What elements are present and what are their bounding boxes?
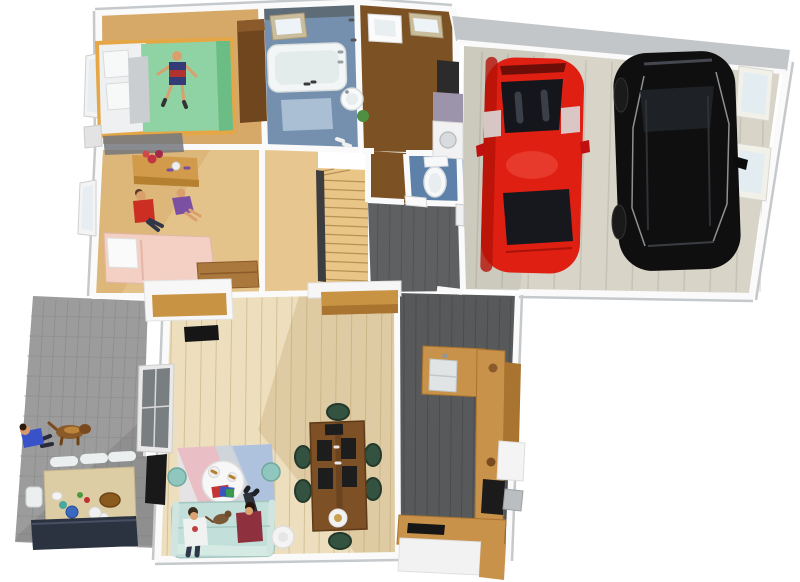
red-car-rear-window — [503, 189, 573, 245]
dining-plate-food — [334, 514, 342, 522]
laundry-basin-bowl — [374, 19, 396, 37]
floor-plan-3d-view — [0, 0, 800, 582]
kids-bed-pillow — [107, 238, 138, 268]
bathroom-sink-basin — [346, 93, 358, 105]
dining-placemat-1 — [317, 440, 332, 461]
sofa-person-2-torso — [236, 511, 263, 543]
red-car-mirror-right — [580, 140, 590, 154]
black-car-windshield — [640, 86, 714, 132]
coffee-table — [202, 461, 244, 503]
landing-floor — [262, 148, 318, 296]
kitchen-tall-cabinet — [503, 362, 521, 443]
fireplace-shelf — [152, 293, 227, 317]
child-on-bed-head — [172, 51, 182, 61]
kitchen-cabinet-front-wood — [479, 542, 506, 580]
sofa-person-1-print — [192, 526, 198, 532]
washing-machine-door — [440, 132, 456, 148]
outdoor-food-green — [77, 492, 83, 498]
living-dark-panel — [145, 454, 167, 505]
dining-chair-right-2 — [365, 478, 381, 500]
coffee-table-book-green — [226, 489, 235, 498]
cat-head — [225, 511, 232, 518]
outdoor-food-jug — [52, 492, 62, 500]
bed-green-blanket-edge — [216, 41, 233, 131]
dining-chair-top — [327, 404, 349, 420]
bathroom-plant — [357, 110, 369, 122]
terrace-man-hair — [20, 424, 27, 431]
dining-placemat-5 — [325, 424, 343, 436]
red-car-stripe-left — [484, 110, 501, 138]
outdoor-food-roast — [100, 493, 120, 507]
outdoor-food-plate-1 — [89, 507, 101, 519]
kitchen-black-oven — [481, 479, 505, 515]
bath-mat — [281, 98, 333, 131]
black-car-wheel-2 — [612, 205, 626, 239]
red-car-stripe-right — [561, 106, 580, 134]
fireplace-insert — [184, 325, 219, 342]
bathtub-inner — [274, 50, 339, 85]
kitchen-cabinet-front — [398, 538, 481, 575]
black-car-wheel-1 — [614, 78, 628, 112]
sofa-back-cushions — [178, 549, 268, 551]
red-car-windshield — [501, 79, 563, 133]
nightstand — [84, 125, 102, 148]
bed-gray-throw — [128, 56, 150, 124]
kitchen-wood-board — [489, 364, 498, 373]
kid-purple-head — [177, 189, 186, 198]
washing-machine-top — [433, 92, 463, 123]
dining-placemat-3 — [318, 468, 333, 489]
garage-window-2-glass — [736, 150, 765, 194]
dining-chair-left-1 — [295, 446, 311, 468]
kid-red-head — [136, 191, 146, 201]
toilet-seat — [429, 173, 442, 193]
side-stool-left — [168, 468, 186, 486]
hall-door — [405, 196, 427, 207]
hall-floor — [368, 202, 461, 292]
garage-door-leaf — [456, 204, 464, 226]
sofa-person-1-torso — [183, 517, 208, 547]
bathroom-skylight-glass — [275, 18, 302, 35]
dining-chair-left-2 — [295, 480, 311, 502]
kids-room-window-glass — [81, 185, 93, 231]
dog-head — [79, 424, 91, 434]
dresser-flowers-3 — [143, 151, 150, 158]
red-car-roof-shine — [506, 151, 558, 179]
dining-chair-bottom — [329, 533, 351, 549]
kitchen-cooktop — [407, 523, 445, 535]
outdoor-food-cup-teal — [59, 501, 67, 509]
sofa-person-1-head — [190, 512, 198, 520]
kitchen-faucet — [443, 354, 448, 359]
kitchen-fridge — [497, 441, 525, 481]
dining-chair-right-1 — [365, 444, 381, 466]
outdoor-chairs-top — [55, 456, 131, 462]
garage-window-1-glass — [741, 72, 768, 115]
black-car-body — [612, 50, 742, 272]
kitchen-steel-box — [503, 489, 523, 511]
wardrobe-top — [237, 19, 265, 32]
sofa-person-2-head — [245, 507, 253, 515]
dog-highlight — [64, 427, 80, 434]
dresser-vase — [172, 162, 180, 170]
dining-placemat-4 — [342, 466, 357, 487]
outdoor-food-bowl-blue — [66, 506, 78, 518]
floor-lamp-inner — [278, 532, 288, 542]
outdoor-chair-left — [26, 487, 42, 507]
dining-placemat-2 — [341, 438, 356, 459]
toilet-tank — [424, 156, 448, 167]
upper-corridor-floor — [366, 151, 409, 203]
floor-plan-canvas — [0, 0, 800, 582]
dresser-flowers-2 — [155, 150, 163, 158]
side-stool-right — [262, 463, 280, 481]
wardrobe — [237, 19, 267, 123]
kitchen-bowl — [487, 458, 496, 467]
laundry-skylight-glass — [413, 18, 439, 33]
bed-pillow-1 — [103, 50, 130, 78]
child-on-bed-shirt-stripe — [169, 70, 186, 77]
outdoor-food-red — [84, 497, 90, 503]
bathroom-sink-faucet — [345, 90, 349, 94]
laundry-counter-dark — [437, 60, 459, 94]
